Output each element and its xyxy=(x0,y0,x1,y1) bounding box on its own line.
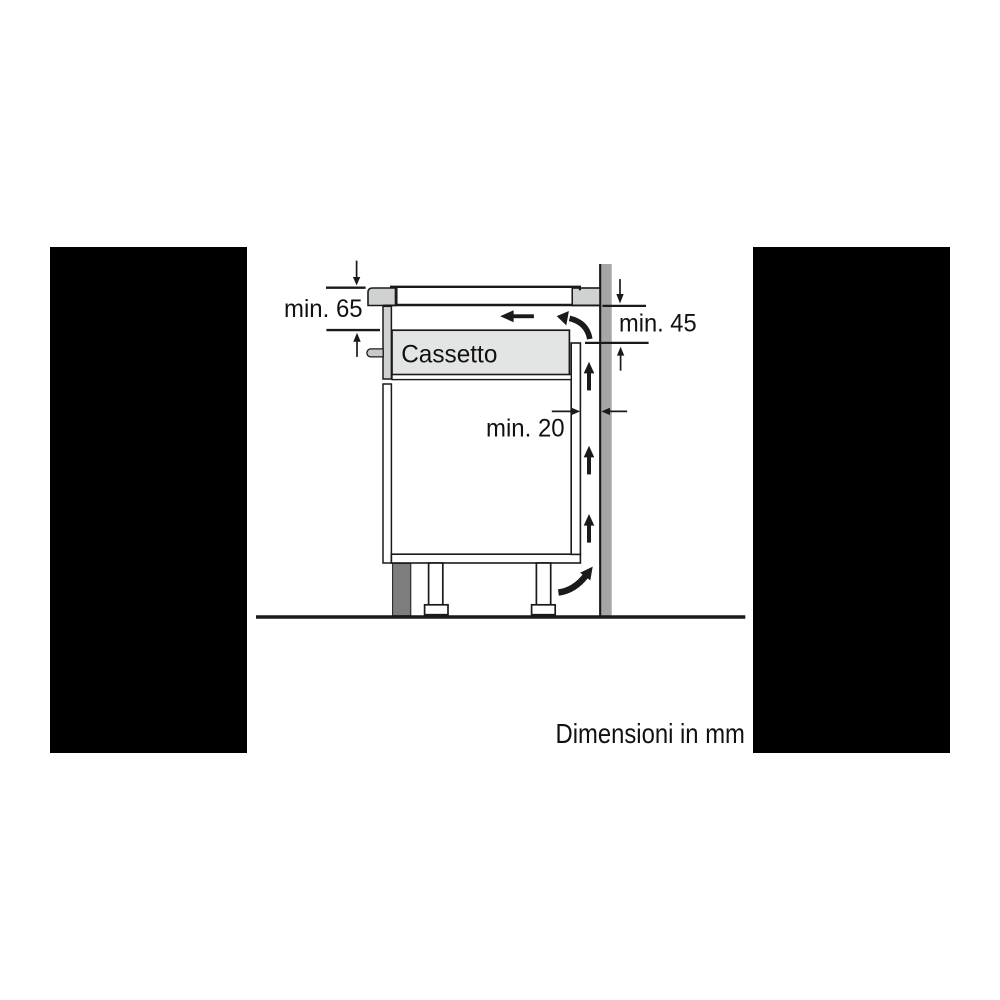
svg-text:min. 45: min. 45 xyxy=(619,309,697,337)
svg-text:min. 65: min. 65 xyxy=(284,295,363,323)
svg-text:min. 20: min. 20 xyxy=(486,415,565,443)
svg-text:Cassetto: Cassetto xyxy=(401,340,497,368)
svg-text:Dimensioni in mm: Dimensioni in mm xyxy=(556,718,745,749)
